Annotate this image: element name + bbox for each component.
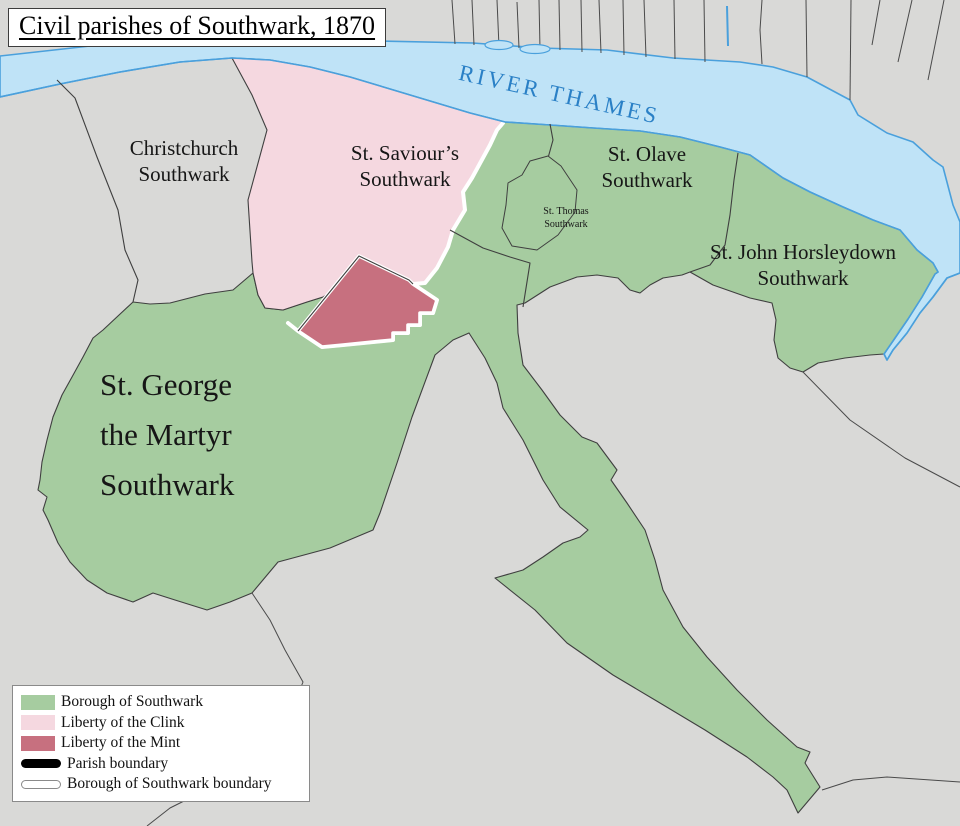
label-st-george-the-martyr-southwark: St. George the Martyr Southwark (100, 360, 360, 511)
legend-item-borough-boundary: Borough of Southwark boundary (21, 774, 304, 795)
legend-item-parish-boundary: Parish boundary (21, 754, 304, 775)
label-st-thomas-southwark: St. Thomas Southwark (516, 205, 616, 231)
map-title: Civil parishes of Southwark, 1870 (19, 11, 375, 40)
legend-item-clink: Liberty of the Clink (21, 713, 304, 734)
legend-item-borough: Borough of Southwark (21, 692, 304, 713)
legend-swatch-borough-green (21, 695, 55, 710)
label-st-saviours-southwark: St. Saviour’s Southwark (305, 141, 505, 192)
canal-inlet (727, 6, 728, 46)
label-st-olave-southwark: St. Olave Southwark (547, 142, 747, 193)
dock-inlet (520, 45, 550, 54)
map-legend: Borough of Southwark Liberty of the Clin… (12, 685, 310, 802)
legend-item-mint: Liberty of the Mint (21, 733, 304, 754)
legend-swatch-parish-boundary-line (21, 759, 61, 768)
label-st-john-horsleydown-southwark: St. John Horsleydown Southwark (668, 240, 938, 291)
dock-inlet (485, 41, 513, 50)
legend-swatch-mint-rose (21, 736, 55, 751)
southwark-parish-map: Civil parishes of Southwark, 1870 RIVER … (0, 0, 960, 826)
map-title-box: Civil parishes of Southwark, 1870 (8, 8, 386, 47)
legend-swatch-clink-pink (21, 715, 55, 730)
legend-swatch-borough-boundary-line (21, 780, 61, 789)
label-christchurch-southwark: Christchurch Southwark (84, 136, 284, 187)
